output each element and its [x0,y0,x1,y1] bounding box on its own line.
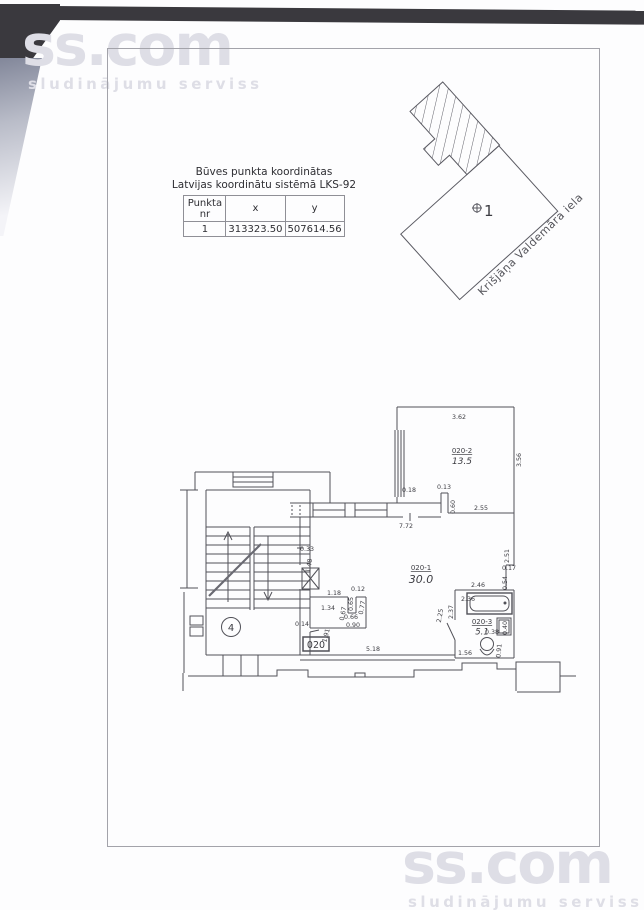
room-label: 13.5 [452,457,472,467]
dimension-label: 0.18 [402,487,416,494]
dimension-label: 2.25 [436,608,445,623]
dimension-label: 0.33 [300,546,314,553]
building-footprint [401,146,558,300]
dimension-label: 0.40 [502,621,509,635]
room-label: 020-2 [452,447,472,455]
room-020-2 [395,407,514,565]
dimension-label: 2.51 [504,549,511,563]
point-marker [472,203,482,213]
dimension-label: 0.90 [346,622,360,629]
dimension-label: 2.36 [461,596,475,603]
dimension-label: 0.12 [351,586,365,593]
room-label: 30.0 [409,573,434,586]
adjacent-structure-outline [183,662,576,692]
watermark-tagline: sludinājumu serviss [402,895,643,910]
dimension-label: 0.66 [344,614,358,621]
dimension-label: 0.13 [437,484,451,491]
dimension-label: 1.56 [458,650,472,657]
toilet [481,638,494,651]
stair-up-arrow [224,532,232,602]
dimension-label: 0.54 [502,576,509,590]
room-020-1 [297,513,455,660]
dimension-label: 0.17 [502,565,516,572]
stair-break-line [209,544,261,596]
dimension-label: 1.34 [321,605,335,612]
dimension-label: 0.65 [348,597,355,611]
dimension-label: 1.48 [305,558,314,573]
watermark-bottom-right: ss.com sludinājumu serviss [402,836,643,910]
room-label: 020-3 [472,618,492,626]
scanned-document-page: ss.com sludinājumu serviss Būves punkta … [0,0,644,910]
dimension-label: 0.60 [450,500,457,514]
stair-number-label: 4 [228,623,234,634]
door-number-label: 020 [307,640,325,651]
dimension-label: 2.37 [448,605,455,619]
dimension-label: 3.56 [516,453,523,467]
dimension-label: 1.18 [327,590,341,597]
dimension-label: 0.14 [295,621,309,628]
room-label: 020-1 [411,564,431,572]
room-label: 5.1 [475,628,489,638]
building-wing-hatched [399,82,500,185]
dimension-label: 0.91 [495,644,503,659]
dimension-label: 7.72 [399,523,413,530]
dimension-label: 2.55 [474,505,488,512]
dimension-label: 5.18 [366,646,380,653]
dimension-label: 3.62 [452,414,466,421]
plan-drawing: 1 Krišjāņa Valdemāra iela [0,0,644,910]
dimension-label: 2.46 [471,582,485,589]
watermark-brand: ss.com [402,836,643,893]
site-plan [344,82,559,300]
point-number-label: 1 [484,202,494,220]
